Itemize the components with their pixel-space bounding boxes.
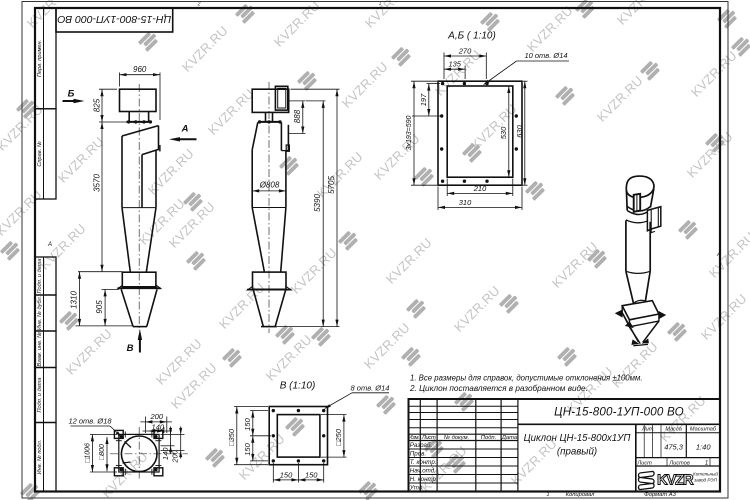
svg-text:Масштаб: Масштаб: [690, 427, 717, 433]
svg-text:А: А: [181, 124, 189, 135]
svg-text:Подп. и дата: Подп. и дата: [37, 377, 43, 412]
svg-text:200: 200: [150, 412, 164, 421]
svg-text:475,3: 475,3: [664, 443, 684, 452]
svg-text:KVZR.RU: KVZR.RU: [688, 48, 740, 100]
svg-text:завод РЭП: завод РЭП: [693, 478, 718, 483]
svg-text:200: 200: [171, 449, 180, 463]
svg-text:150: 150: [280, 470, 293, 479]
svg-text:Ø808: Ø808: [259, 181, 280, 190]
svg-text:197: 197: [419, 93, 428, 106]
svg-text:KVZR.RU: KVZR.RU: [216, 280, 268, 332]
svg-text:KVZR: KVZR: [657, 473, 694, 489]
svg-text:KVZR.RU: KVZR.RU: [609, 339, 661, 391]
svg-text:KVZR.RU: KVZR.RU: [371, 131, 423, 183]
svg-text:Формат А3: Формат А3: [644, 492, 676, 498]
svg-text:□800: □800: [99, 444, 106, 460]
svg-text:1: 1: [379, 1, 382, 7]
svg-text:1: 1: [705, 461, 708, 467]
svg-text:KVZR.RU: KVZR.RU: [614, 0, 666, 28]
svg-text:1: 1: [546, 492, 549, 498]
svg-text:2. Циклон поставляется в р: 2. Циклон поставляется в разобранном вид…: [409, 384, 588, 393]
svg-text:630: 630: [515, 124, 524, 137]
svg-text:8 отв. Ø14: 8 отв. Ø14: [351, 384, 390, 393]
svg-text:KVZR.RU: KVZR.RU: [205, 86, 257, 138]
svg-text:KVZR.RU: KVZR.RU: [37, 221, 89, 273]
svg-text:135: 135: [448, 60, 461, 69]
svg-text:5390: 5390: [313, 194, 322, 212]
svg-text:Т. контр.: Т. контр.: [410, 459, 437, 466]
svg-text:Взам. инв. №: Взам. инв. №: [37, 332, 43, 367]
svg-text:Лит.: Лит.: [641, 427, 655, 433]
svg-text:140: 140: [152, 422, 165, 431]
svg-text:Пров.: Пров.: [410, 451, 426, 458]
svg-text:Масса: Масса: [665, 427, 682, 433]
svg-text:2: 2: [197, 2, 201, 8]
svg-text:5705: 5705: [327, 176, 336, 194]
svg-text:Дата: Дата: [501, 435, 518, 441]
svg-text:ЦН-15-800-1УП-000 ВО: ЦН-15-800-1УП-000 ВО: [57, 13, 171, 25]
svg-text:KVZR.RU: KVZR.RU: [657, 393, 709, 445]
svg-text:В: В: [127, 343, 134, 354]
svg-text:1310: 1310: [70, 291, 79, 309]
svg-text:Перв. примен.: Перв. примен.: [37, 40, 43, 77]
svg-text:210: 210: [473, 184, 487, 193]
svg-text:KVZR.RU: KVZR.RU: [361, 320, 413, 372]
svg-text:А: А: [47, 242, 52, 248]
svg-text:3570: 3570: [92, 174, 101, 192]
svg-text:960: 960: [133, 65, 147, 74]
svg-text:Циклон ЦН-15-800х1УП: Циклон ЦН-15-800х1УП: [524, 433, 632, 444]
svg-text:Копировал: Копировал: [566, 492, 596, 498]
svg-text:Листов: Листов: [668, 461, 689, 467]
svg-text:12 отв. Ø18: 12 отв. Ø18: [68, 417, 112, 426]
svg-text:825: 825: [92, 98, 101, 112]
svg-text:150: 150: [305, 470, 318, 479]
svg-text:KVZR.RU: KVZR.RU: [594, 73, 646, 125]
svg-text:А,Б ( 1:10): А,Б ( 1:10): [447, 31, 496, 42]
svg-text:1:40: 1:40: [696, 443, 711, 452]
svg-text:□1006: □1006: [84, 443, 91, 463]
svg-text:Инв. № подл.: Инв. № подл.: [37, 440, 43, 475]
svg-text:А: А: [716, 252, 721, 258]
svg-text:KVZR.RU: KVZR.RU: [362, 0, 414, 31]
svg-text:KVZR.RU: KVZR.RU: [698, 291, 750, 343]
svg-text:888: 888: [293, 109, 302, 123]
svg-text:310: 310: [459, 198, 472, 207]
svg-text:□250: □250: [334, 428, 343, 446]
svg-text:Справ. №: Справ. №: [37, 141, 43, 166]
svg-text:1. Все размеры для справок: 1. Все размеры для справок, допустимые о…: [410, 374, 643, 383]
svg-text:10 отв. Ø14: 10 отв. Ø14: [524, 51, 567, 60]
svg-text:ЦН-15-800-1УП-000 ВО: ЦН-15-800-1УП-000 ВО: [554, 406, 684, 419]
svg-text:□350: □350: [227, 428, 236, 446]
svg-text:Утв.: Утв.: [409, 485, 424, 492]
svg-text:KVZR.RU: KVZR.RU: [288, 245, 340, 297]
svg-text:KVZR.RU: KVZR.RU: [549, 239, 601, 291]
svg-text:Подп. и дата: Подп. и дата: [37, 258, 43, 293]
svg-text:530: 530: [499, 126, 508, 139]
svg-text:KVZR.RU: KVZR.RU: [179, 23, 231, 75]
svg-text:270: 270: [458, 46, 472, 55]
svg-text:150: 150: [243, 417, 252, 430]
svg-text:KVZR.RU: KVZR.RU: [63, 326, 115, 378]
svg-text:Лист: Лист: [636, 461, 652, 467]
svg-text:Изм.: Изм.: [408, 435, 419, 441]
svg-text:Нач.отд.: Нач.отд.: [410, 468, 436, 475]
svg-text:Котельный: Котельный: [693, 471, 718, 477]
svg-text:KVZR.RU: KVZR.RU: [524, 3, 576, 55]
svg-text:905: 905: [95, 300, 104, 314]
svg-text:Н. контр.: Н. контр.: [410, 476, 438, 483]
svg-text:KVZR.RU: KVZR.RU: [451, 283, 503, 335]
svg-text:KVZR.RU: KVZR.RU: [145, 146, 197, 198]
svg-text:150: 150: [243, 442, 252, 455]
svg-text:Разраб.: Разраб.: [410, 442, 432, 449]
svg-text:(правый): (правый): [557, 447, 597, 458]
svg-text:KVZR.RU: KVZR.RU: [383, 235, 435, 287]
svg-text:№ докум.: № докум.: [444, 435, 470, 441]
svg-text:3х193=590: 3х193=590: [406, 115, 413, 150]
svg-text:В (1:10): В (1:10): [280, 381, 316, 392]
svg-text:Лист: Лист: [421, 435, 436, 441]
svg-text:140: 140: [161, 447, 170, 460]
svg-text:KVZR.RU: KVZR.RU: [339, 59, 391, 111]
svg-text:Подп.: Подп.: [481, 435, 496, 441]
svg-text:Инв. № дубл.: Инв. № дубл.: [37, 296, 43, 330]
svg-text:KVZR.RU: KVZR.RU: [314, 149, 366, 201]
svg-text:Б: Б: [68, 89, 75, 100]
